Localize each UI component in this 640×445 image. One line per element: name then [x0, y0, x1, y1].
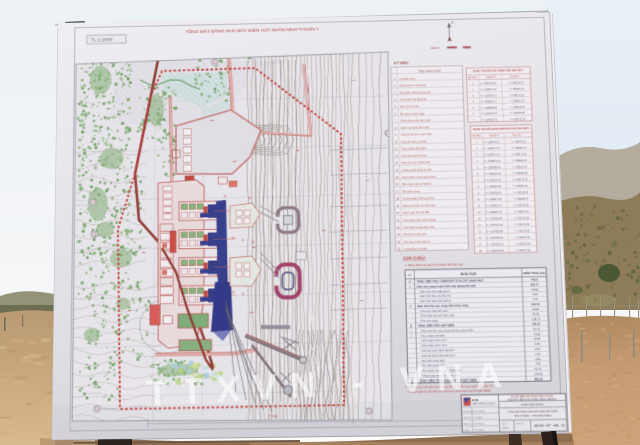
- svg-text:TTXVN - VNA: TTXVN - VNA: [145, 353, 516, 413]
